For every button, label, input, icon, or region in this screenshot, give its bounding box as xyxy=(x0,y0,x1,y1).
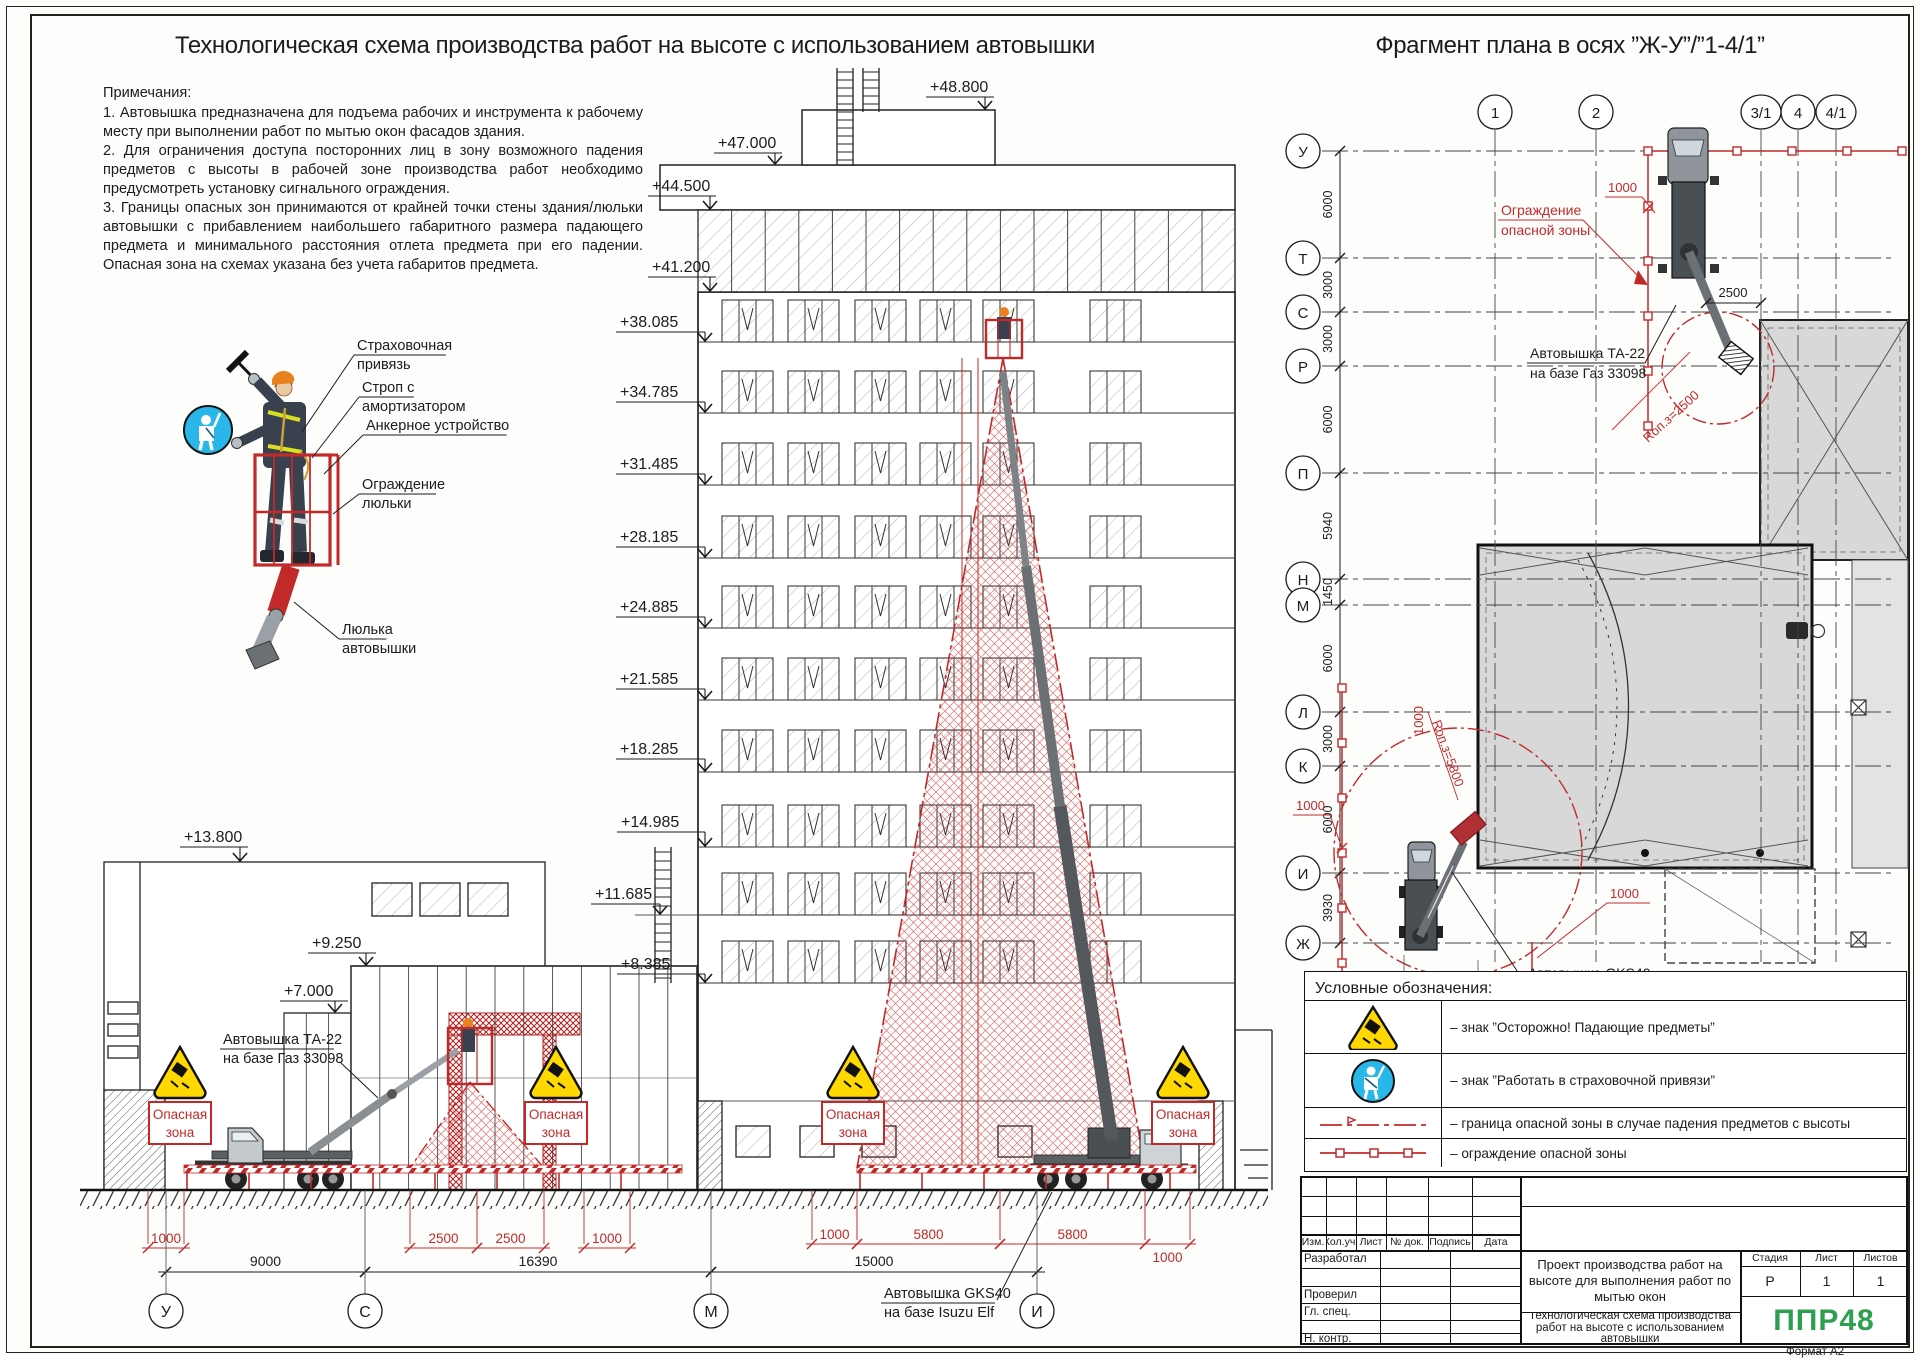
window-group xyxy=(1090,586,1141,628)
danger-fence-line-icon xyxy=(1305,1139,1442,1167)
equipment-callout: Люлькаавтовышки xyxy=(294,602,416,657)
callout-text: Ограждение xyxy=(362,477,445,493)
dimension-value: 2500 xyxy=(1719,285,1748,300)
window-group xyxy=(1090,730,1141,772)
titleblock-header-col: № док. xyxy=(1386,1234,1428,1250)
window-group xyxy=(920,516,971,558)
dimension-value: 6000 xyxy=(1321,406,1335,434)
window-group xyxy=(1090,371,1141,413)
dimension-value: 3000 xyxy=(1321,325,1335,353)
title-block-line xyxy=(1520,1206,1908,1207)
axis-label: 4/1 xyxy=(1826,105,1847,122)
boom-lift-ta22-plan xyxy=(1658,128,1753,374)
axis-marker: С xyxy=(348,1190,382,1328)
dimension-black: 16390 xyxy=(357,1253,719,1277)
title-block-line xyxy=(1450,1250,1451,1345)
dimension-value: 16390 xyxy=(519,1253,558,1269)
title-block-line xyxy=(1300,1196,1520,1197)
window-group xyxy=(855,730,906,772)
window-group xyxy=(722,941,773,983)
elevation-mark-value: +41.200 xyxy=(652,259,710,276)
plan-label-text: опасной зоны xyxy=(1501,222,1590,238)
machine-label-text: на базе Isuzu Elf xyxy=(884,1305,995,1321)
elevation-mark-value: +21.585 xyxy=(620,671,678,688)
plan-dim-red: 1000 xyxy=(1293,798,1347,853)
titleblock-header-col: Дата xyxy=(1472,1234,1520,1250)
axis-label: М xyxy=(704,1304,717,1321)
callout-text: Анкерное устройство xyxy=(366,418,509,434)
axis-label: 4 xyxy=(1794,105,1802,122)
format-note: Формат А2 xyxy=(1786,1346,1906,1358)
titleblock-role: Разработал xyxy=(1300,1250,1380,1268)
worker-helmet-icon xyxy=(463,1018,473,1028)
dimension-value: 1450 xyxy=(1321,578,1335,606)
dimension-value: 3930 xyxy=(1321,894,1335,922)
elevation-mark-value: +38.085 xyxy=(620,314,678,331)
dimension-value: 9000 xyxy=(250,1253,281,1269)
dimension-value: 6000 xyxy=(1321,191,1335,219)
window-group xyxy=(722,300,773,342)
window-group xyxy=(788,586,839,628)
titleblock-sheets-label: Листов xyxy=(1853,1250,1908,1266)
plan-row-axis: Т xyxy=(1286,241,1896,275)
axis-label: Л xyxy=(1298,705,1308,722)
plan-dim-red: 1000 xyxy=(1537,886,1650,958)
legend-text: – знак ”Работать в страховочной привязи” xyxy=(1442,1069,1723,1092)
legend-title: Условные обозначения: xyxy=(1305,972,1906,1000)
window-group xyxy=(788,371,839,413)
window-group xyxy=(855,300,906,342)
callout-text: амортизатором xyxy=(362,399,466,415)
titleblock-role: Проверил xyxy=(1300,1286,1380,1303)
titleblock-header-col: Изм. xyxy=(1300,1234,1326,1250)
legend-row: – знак ”Осторожно! Падающие предметы” xyxy=(1305,1000,1906,1053)
window-group xyxy=(1090,443,1141,485)
callout-text: люльки xyxy=(362,496,411,512)
radius-label: Rоп.з=2500 xyxy=(1640,387,1702,445)
axis-label: 3/1 xyxy=(1751,105,1772,122)
dimension-black: 15000 xyxy=(703,1253,1045,1277)
dimension-value: 1000 xyxy=(1296,798,1325,813)
title-block-line xyxy=(1300,1216,1520,1217)
axis-label: С xyxy=(1298,305,1309,322)
window-group xyxy=(788,443,839,485)
axis-marker: И xyxy=(1020,1190,1054,1328)
plan-fence-label: Ограждениеопасной зоны xyxy=(1498,202,1648,285)
dimension-value: 1000 xyxy=(1610,886,1639,901)
elevation-mark-value: +18.285 xyxy=(620,741,678,758)
safety-harness-sign-icon xyxy=(1305,1054,1442,1107)
window-group xyxy=(788,941,839,983)
dimension-value: 5940 xyxy=(1321,512,1335,540)
dimension-value: 5800 xyxy=(1057,1227,1087,1242)
window-group xyxy=(855,873,906,915)
window-group xyxy=(722,586,773,628)
equipment-callout: Анкерное устройство xyxy=(324,418,509,474)
danger-zone-text: зона xyxy=(839,1125,868,1140)
window-group xyxy=(855,658,906,700)
axis-label: Н xyxy=(1298,572,1309,589)
danger-zone-text: Опасная xyxy=(529,1107,583,1122)
elevation-mark-value: +9.250 xyxy=(312,935,361,952)
legend-row: – знак ”Работать в страховочной привязи” xyxy=(1305,1053,1906,1107)
callout-text: привязь xyxy=(357,357,411,373)
danger-zone-placard: Опаснаязона xyxy=(822,1102,884,1144)
titleblock-stage-label: Стадия xyxy=(1740,1250,1800,1266)
company-logo: ППР48 xyxy=(1740,1296,1908,1345)
titleblock-stage-value: Р xyxy=(1740,1266,1800,1296)
window-group xyxy=(788,516,839,558)
window-group xyxy=(855,586,906,628)
callout-text: автовышки xyxy=(342,641,416,657)
axis-label: С xyxy=(359,1304,371,1321)
elevation-mark-value: +31.485 xyxy=(620,456,678,473)
danger-zone-placard: Опаснаязона xyxy=(525,1102,587,1144)
legend-row: – граница опасной зоны в случае падения … xyxy=(1305,1107,1906,1138)
window-group xyxy=(722,516,773,558)
dimension-value: 2500 xyxy=(495,1231,525,1246)
elevation-mark-value: +28.185 xyxy=(620,529,678,546)
elevation-mark: +48.800 xyxy=(926,79,994,109)
worker-illustration xyxy=(184,352,338,669)
elevation-mark-value: +8.385 xyxy=(621,956,670,973)
danger-zone-text: Опасная xyxy=(1156,1107,1210,1122)
window-group xyxy=(920,371,971,413)
titleblock-doc-title: Проект производства работ на высоте для … xyxy=(1520,1250,1740,1312)
window-group xyxy=(788,873,839,915)
elevation-mark-value: +7.000 xyxy=(284,983,333,1000)
legend-text: – ограждение опасной зоны xyxy=(1442,1142,1635,1165)
axis-label: Т xyxy=(1298,251,1307,268)
elevation-mark-value: +47.000 xyxy=(718,135,776,152)
danger-zone-placard: Опаснаязона xyxy=(1152,1102,1214,1144)
axis-label: К xyxy=(1299,759,1308,776)
dimension-value: 6000 xyxy=(1321,645,1335,673)
window-group xyxy=(855,805,906,847)
machine-label-text: на базе Газ 33098 xyxy=(223,1051,344,1067)
window-group xyxy=(920,300,971,342)
elevation-mark-value: +11.685 xyxy=(595,886,652,903)
worker-helmet-icon xyxy=(999,307,1009,317)
dimension-value: 1000 xyxy=(819,1227,849,1242)
dimension-black: 9000 xyxy=(158,1253,373,1277)
drawing-sheet: { "sheet": {"format_note": "Формат А2"},… xyxy=(0,0,1920,1359)
legend-text: – знак ”Осторожно! Падающие предметы” xyxy=(1442,1016,1723,1039)
plan-machine-label: Автовышка ТА-22на базе Газ 33098 xyxy=(1527,305,1676,381)
plan-label-text: Автовышка ТА-22 xyxy=(1530,345,1645,361)
window-group xyxy=(1090,300,1141,342)
axis-label: И xyxy=(1298,866,1309,883)
window-group xyxy=(722,443,773,485)
danger-zone-text: зона xyxy=(542,1125,571,1140)
legend-text: – граница опасной зоны в случае падения … xyxy=(1442,1112,1858,1135)
window-group xyxy=(788,300,839,342)
axis-label: И xyxy=(1031,1304,1043,1321)
elevation-mark: +41.200 xyxy=(648,259,717,291)
titleblock-header-col: Подпись xyxy=(1428,1234,1472,1250)
titleblock-role: Гл. спец. xyxy=(1300,1303,1380,1320)
elevation-mark-value: +44.500 xyxy=(652,178,710,195)
danger-boundary-line-icon xyxy=(1305,1108,1442,1138)
axis-label: Ж xyxy=(1296,936,1310,953)
window-group xyxy=(722,371,773,413)
window-group xyxy=(722,658,773,700)
elevation-mark-value: +24.885 xyxy=(620,599,678,616)
elevation-mark-value: +34.785 xyxy=(620,384,678,401)
window-group xyxy=(855,371,906,413)
boom-lift-gks40-plan xyxy=(1399,812,1486,950)
titleblock-sheet-title: Технологическая схема производства работ… xyxy=(1520,1312,1740,1345)
title-block-line xyxy=(1300,1268,1520,1269)
window-group xyxy=(722,805,773,847)
window-group xyxy=(1090,658,1141,700)
elevation-mark-value: +14.985 xyxy=(621,814,679,831)
dimension-value: 1000 xyxy=(1152,1250,1182,1265)
danger-zone-text: Опасная xyxy=(826,1107,880,1122)
title-block-line xyxy=(1380,1250,1381,1345)
window-group xyxy=(788,730,839,772)
ground-line xyxy=(80,1190,1268,1209)
titleblock-sheet-value: 1 xyxy=(1800,1266,1853,1296)
window-group xyxy=(722,873,773,915)
dimension-value: 1000 xyxy=(1608,180,1637,195)
dimension-value: 3000 xyxy=(1321,725,1335,753)
danger-zone-text: зона xyxy=(1169,1125,1198,1140)
axis-label: М xyxy=(1297,598,1310,615)
window-group xyxy=(1090,516,1141,558)
legend-box: Условные обозначения: – знак ”Осторожно!… xyxy=(1304,971,1907,1172)
title-block-line xyxy=(1300,1320,1520,1321)
danger-zone-text: Опасная xyxy=(153,1107,207,1122)
dimension-value: 5800 xyxy=(913,1227,943,1242)
window-group xyxy=(855,443,906,485)
callout-text: Строп с xyxy=(362,380,414,396)
titleblock-header-col: Лист xyxy=(1356,1234,1386,1250)
elevation-mark-value: +48.800 xyxy=(930,79,988,96)
plan-label-text: на базе Газ 33098 xyxy=(1530,365,1647,381)
window-group xyxy=(788,658,839,700)
machine-label-text: Автовышка GKS40 xyxy=(884,1286,1011,1302)
dimension-value: 2500 xyxy=(428,1231,458,1246)
title-block: Изм.Кол.уч.Лист№ док.ПодписьДатаРазработ… xyxy=(1300,1176,1908,1345)
danger-zone-placard: Опаснаязона xyxy=(149,1102,211,1144)
titleblock-sheet-label: Лист xyxy=(1800,1250,1853,1266)
titleblock-sheets-value: 1 xyxy=(1853,1266,1908,1296)
window-group xyxy=(722,730,773,772)
titleblock-header-col: Кол.уч. xyxy=(1326,1234,1356,1250)
axis-label: П xyxy=(1298,466,1309,483)
danger-zone-text: зона xyxy=(166,1125,195,1140)
plan-label-text: Ограждение xyxy=(1501,202,1581,218)
dimension-value: 3000 xyxy=(1321,271,1335,299)
elevation-mark: +13.800 xyxy=(180,829,248,861)
titleblock-role: Н. контр. xyxy=(1300,1333,1380,1345)
axis-label: Р xyxy=(1298,359,1308,376)
axis-label: У xyxy=(1298,144,1308,161)
falling-objects-sign-icon xyxy=(1305,1001,1442,1053)
window-group xyxy=(788,805,839,847)
dimension-value: 15000 xyxy=(855,1253,894,1269)
axis-label: 1 xyxy=(1491,105,1499,122)
equipment-callout: Ограждениелюльки xyxy=(333,477,445,514)
axis-marker: М xyxy=(694,1190,728,1328)
elevation-mark: +47.000 xyxy=(714,135,782,164)
dimension-value: 1000 xyxy=(592,1231,622,1246)
axis-marker: У xyxy=(149,1190,183,1328)
legend-row: – ограждение опасной зоны xyxy=(1305,1138,1906,1167)
dimension-value: 1000 xyxy=(1411,706,1426,735)
elevation-mark-value: +13.800 xyxy=(184,829,242,846)
machine-label-text: Автовышка ТА-22 xyxy=(223,1032,342,1048)
axis-label: 2 xyxy=(1592,105,1600,122)
callout-text: Страховочная xyxy=(357,338,452,354)
window-group xyxy=(920,443,971,485)
axis-label: У xyxy=(161,1304,172,1321)
plan-buildings xyxy=(1478,320,1908,1031)
title-block-line xyxy=(1300,1176,1908,1178)
callout-text: Люлька xyxy=(342,622,394,638)
window-group xyxy=(1090,805,1141,847)
plan-row-axis: Ж xyxy=(1286,926,1896,960)
window-group xyxy=(855,516,906,558)
